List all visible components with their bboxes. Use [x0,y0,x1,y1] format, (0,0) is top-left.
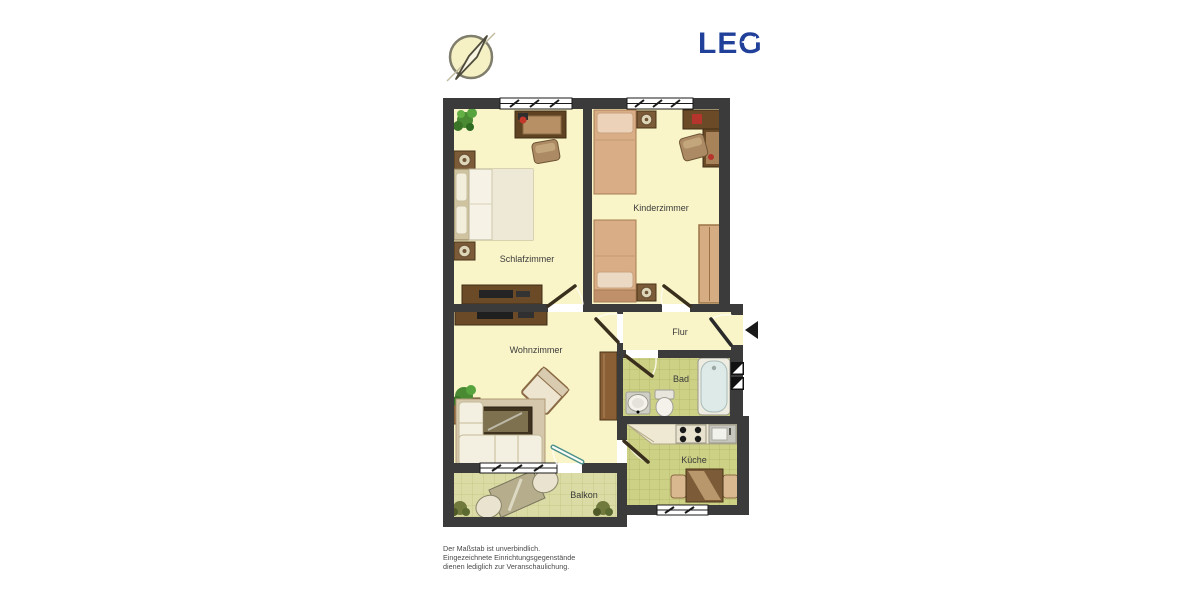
desk-chair [531,139,560,164]
window-wohnzimmer [480,463,557,473]
label-schlafzimmer: Schlafzimmer [500,254,555,264]
label-balkon: Balkon [570,490,598,500]
window-kinderzimmer [627,98,693,109]
wardrobe [699,225,720,303]
label-kinderzimmer: Kinderzimmer [633,203,689,213]
label-bad: Bad [673,374,689,384]
floor-entrance-gap [731,315,743,345]
label-flur: Flur [672,327,688,337]
floorplan-canvas: LEG [0,0,1200,600]
disclaimer-line: dienen lediglich zur Veranschaulichung. [443,562,569,571]
leg-logo: LEG [698,27,763,60]
desk [515,111,566,138]
nightstand [454,151,475,169]
corner-sofa [456,399,545,467]
single-bed [594,220,636,302]
bath-sink [626,392,650,414]
stove [676,425,706,443]
disclaimer-line: Eingezeichnete Einrichtungsgegenstände [443,553,575,562]
label-wohnzimmer: Wohnzimmer [510,345,563,355]
window-schlafzimmer [500,98,572,109]
kitchen-sink [709,425,736,443]
single-bed [594,110,636,194]
label-kueche: Küche [681,455,707,465]
nightstand [637,284,656,301]
nightstand [454,242,475,260]
bathtub [698,358,730,415]
nightstand [637,111,656,128]
disclaimer-line: Der Maßstab ist unverbindlich. [443,544,540,553]
toilet [655,390,674,417]
tall-cabinet [600,352,617,420]
floorplan: Schlafzimmer Kinderzimmer Wohnzimmer Flu… [443,98,758,527]
window-kueche [657,505,708,515]
sideboard [462,285,542,304]
double-bed [454,169,533,240]
